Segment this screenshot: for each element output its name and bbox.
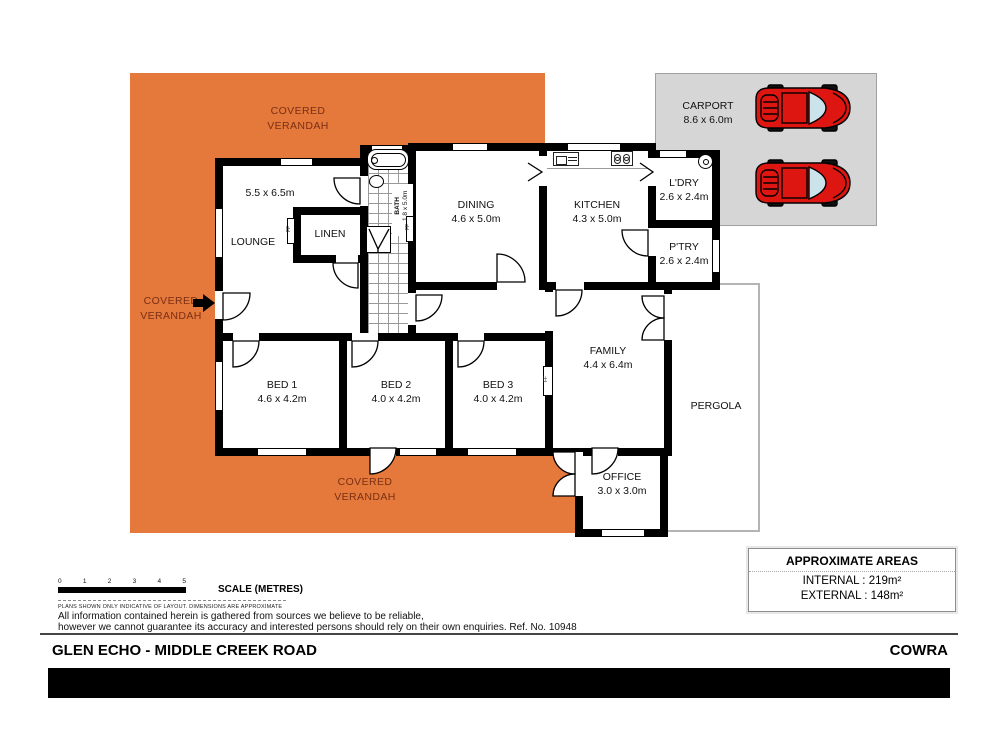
scale-tick: 3 [133, 578, 137, 585]
property-title: GLEN ECHO - MIDDLE CREEK ROAD [52, 642, 317, 659]
scale-bar-rule [58, 587, 186, 593]
disclaimer-line1: All information contained herein is gath… [58, 611, 424, 622]
scale-tick: 1 [83, 578, 87, 585]
scale-tick: 4 [158, 578, 162, 585]
fine-print: PLANS SHOWN ONLY INDICATIVE OF LAYOUT. D… [58, 604, 282, 610]
divider-line [40, 633, 958, 635]
scale-underline [58, 600, 286, 601]
scale-tick-labels: 012345 [58, 578, 186, 585]
areas-external: EXTERNAL : 148m² [749, 587, 955, 602]
scale-tick: 5 [182, 578, 186, 585]
redacted-bar [48, 668, 950, 698]
areas-internal: INTERNAL : 219m² [749, 572, 955, 587]
scale-tick: 0 [58, 578, 62, 585]
floor-plan-page: COVERED VERANDAH COVERED VERANDAH COVERE… [0, 0, 1000, 750]
approximate-areas-box: APPROXIMATE AREAS INTERNAL : 219m² EXTER… [748, 548, 956, 612]
door-swing-overlay [0, 0, 1000, 750]
entry-arrow-icon [193, 294, 215, 312]
disclaimer-line2: however we cannot guarantee its accuracy… [58, 622, 577, 633]
scale-label: SCALE (METRES) [218, 584, 303, 595]
areas-title: APPROXIMATE AREAS [749, 549, 955, 572]
scale-tick: 2 [108, 578, 112, 585]
scale-bar: 012345 [58, 578, 186, 593]
locality-label: COWRA [890, 642, 948, 659]
